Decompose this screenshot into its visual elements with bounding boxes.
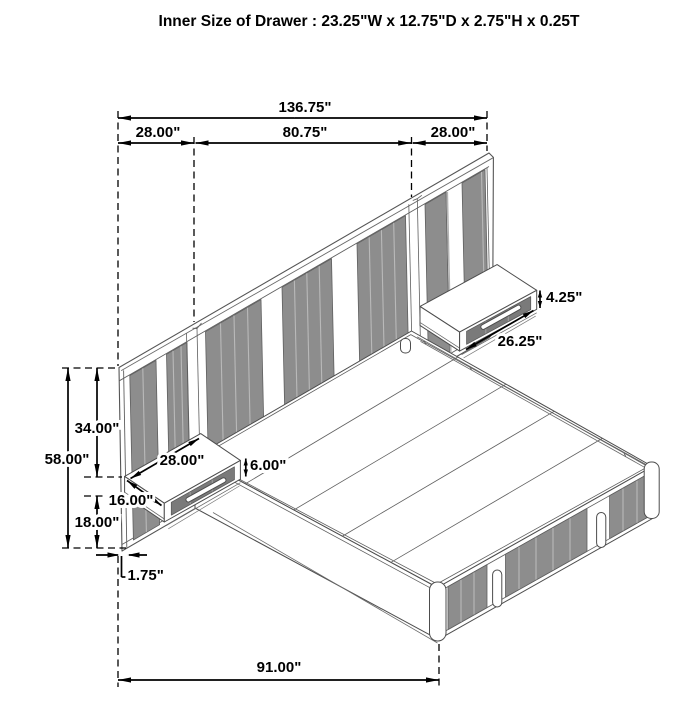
svg-text:Inner Size of Drawer : 23.25"W: Inner Size of Drawer : 23.25"W x 12.75"D… bbox=[159, 13, 580, 30]
svg-text:28.00": 28.00" bbox=[160, 452, 205, 469]
svg-text:136.75": 136.75" bbox=[279, 99, 332, 116]
svg-text:34.00": 34.00" bbox=[75, 420, 120, 437]
svg-text:28.00": 28.00" bbox=[431, 124, 476, 141]
svg-text:80.75": 80.75" bbox=[283, 124, 328, 141]
svg-text:58.00": 58.00" bbox=[45, 451, 90, 468]
svg-text:28.00": 28.00" bbox=[136, 124, 181, 141]
svg-text:26.25": 26.25" bbox=[498, 333, 543, 350]
svg-text:1.75": 1.75" bbox=[128, 567, 164, 584]
svg-text:91.00": 91.00" bbox=[257, 659, 302, 676]
svg-text:4.25": 4.25" bbox=[546, 289, 582, 306]
svg-text:16.00": 16.00" bbox=[109, 492, 154, 509]
svg-text:18.00": 18.00" bbox=[75, 514, 120, 531]
svg-text:6.00": 6.00" bbox=[250, 457, 286, 474]
